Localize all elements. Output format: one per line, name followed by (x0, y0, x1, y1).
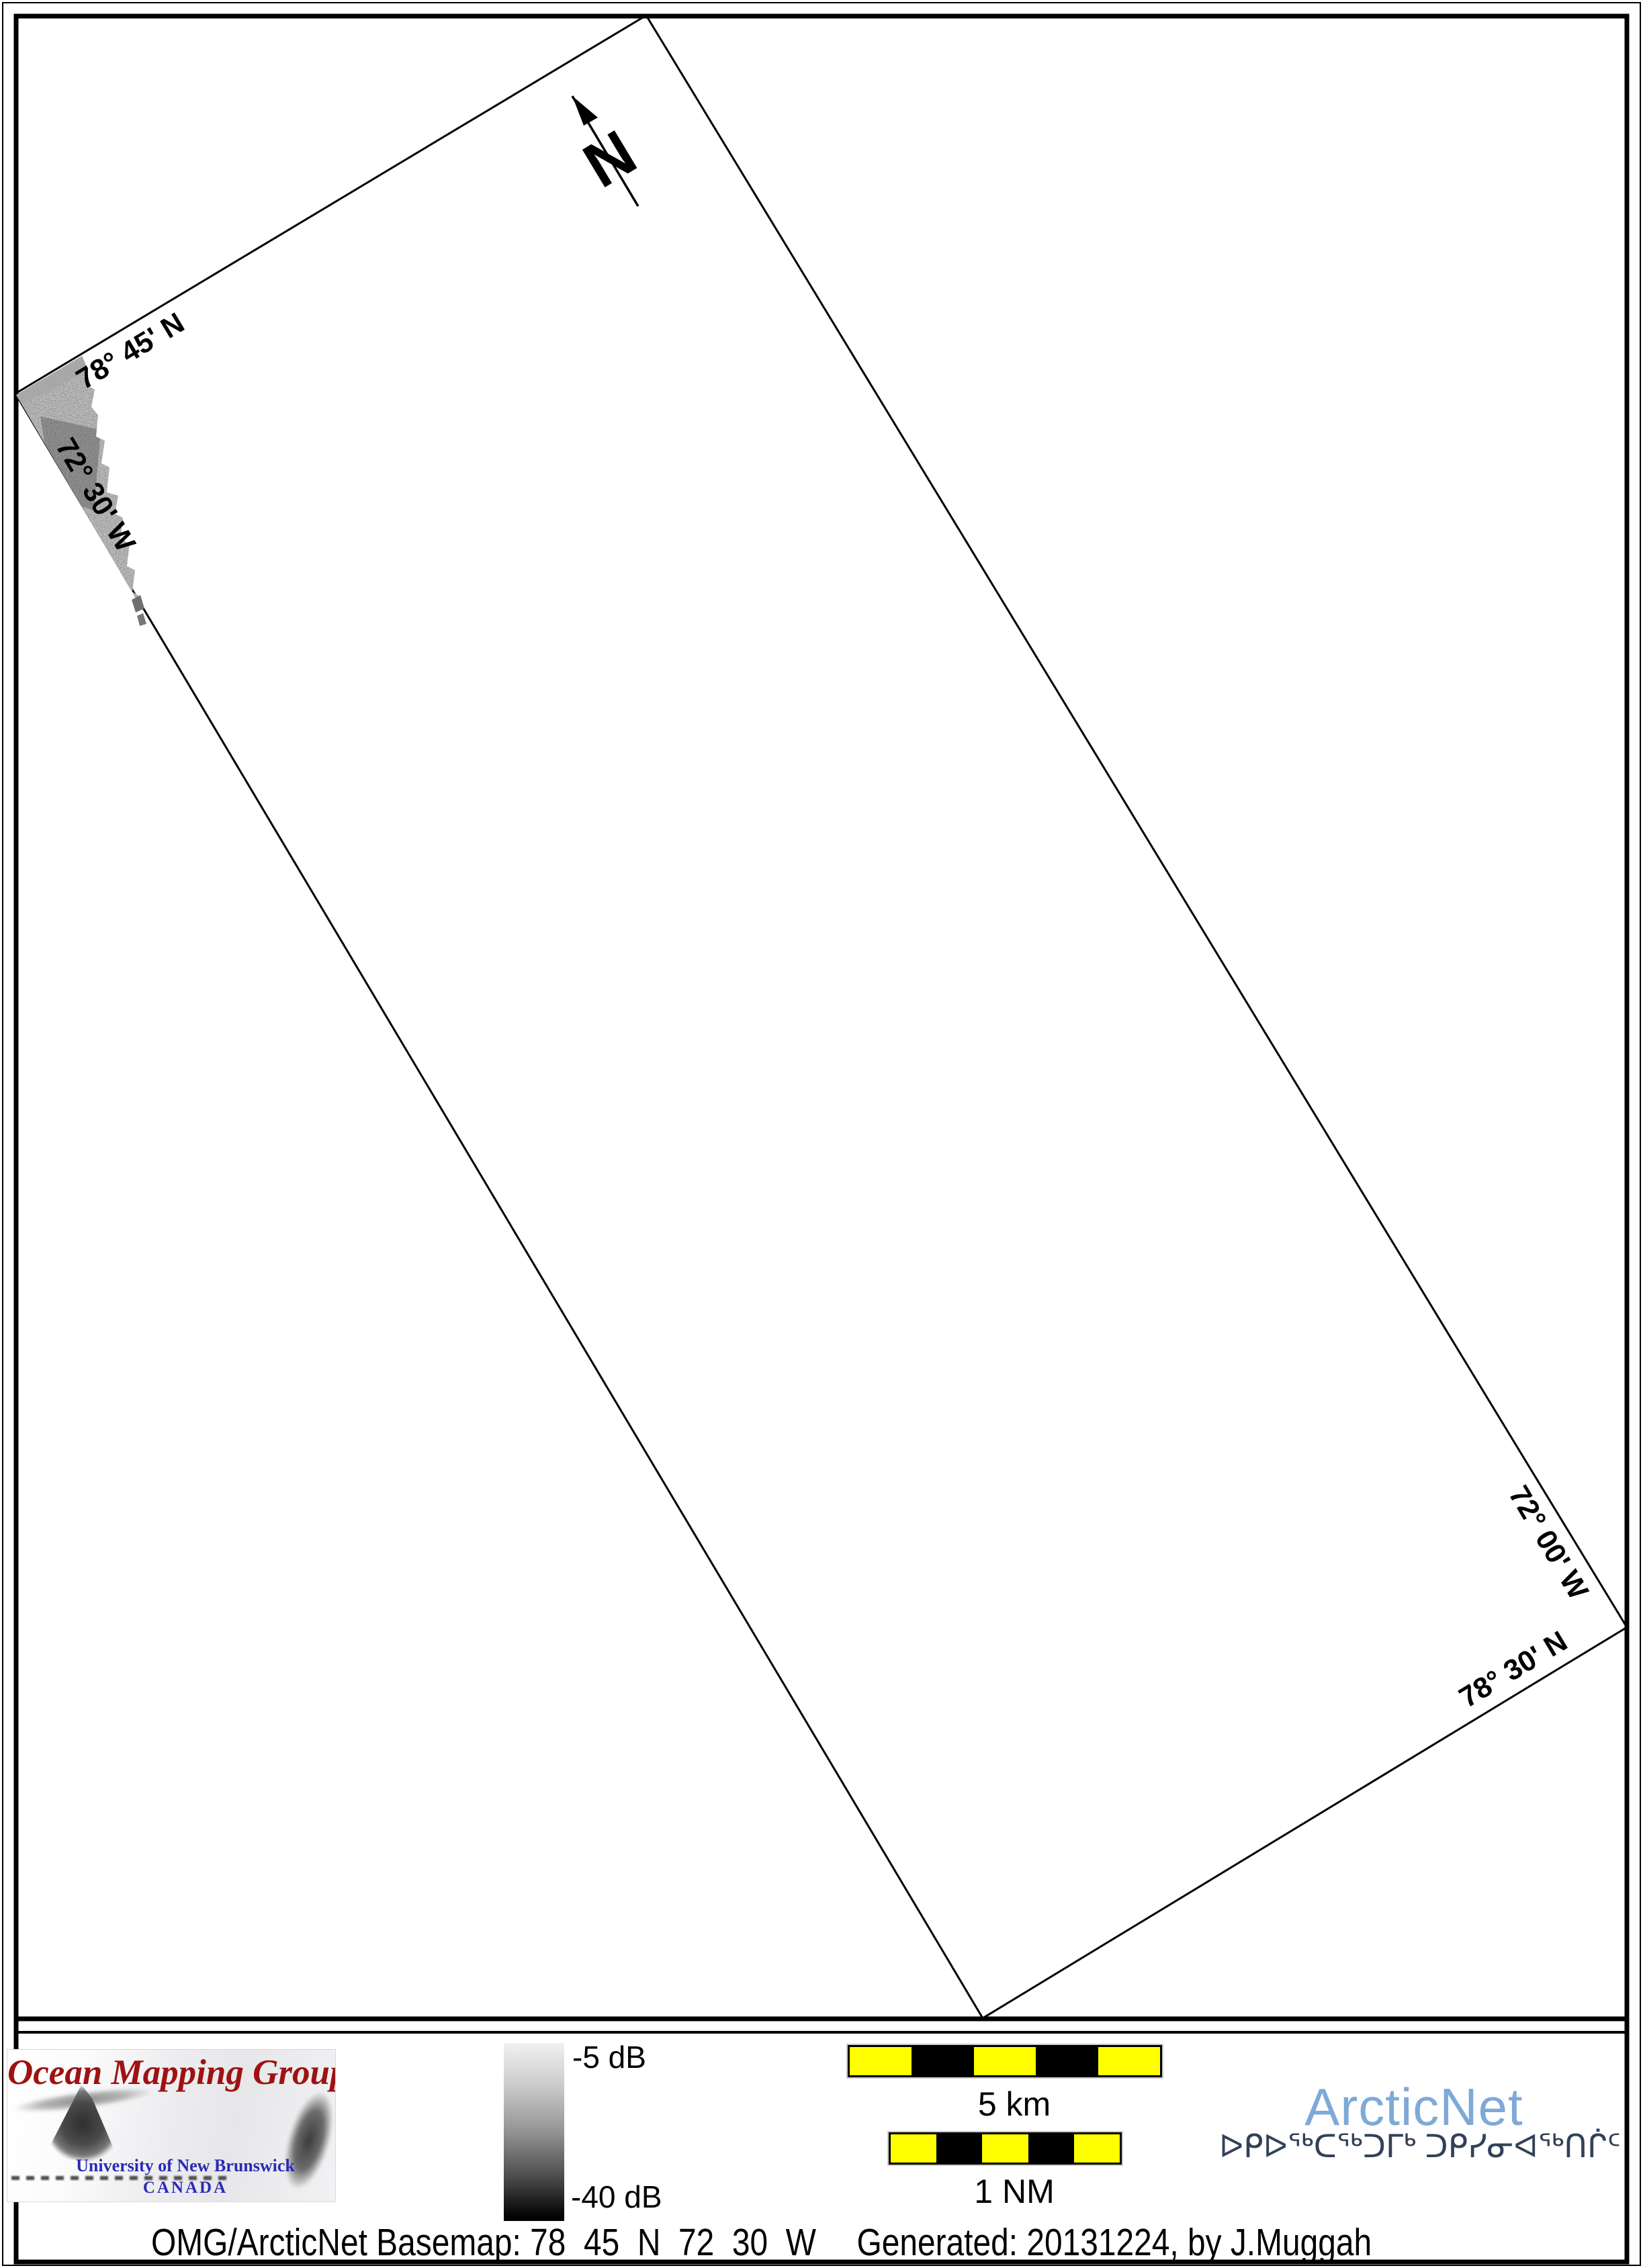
scalebar-segment (850, 2047, 912, 2075)
outer-frame (3, 3, 1640, 2265)
basemap-page: 78° 45' N 72° 30' W 72° 00' W 78° 30' N … (0, 0, 1643, 2268)
scalebar-segment (1098, 2047, 1160, 2075)
scalebar-km-label: 5 km (934, 2085, 1095, 2124)
scalebar-nm-label: 1 NM (934, 2172, 1095, 2211)
scalebar-segment (1028, 2134, 1074, 2163)
north-arrow-icon: N (572, 96, 648, 206)
omg-logo-title: Ocean Mapping Group (7, 2052, 335, 2093)
scalebar-nm (889, 2132, 1122, 2165)
grid-label-lat-top: 78° 45' N (71, 307, 189, 396)
colorbar-min-label: -40 dB (571, 2179, 662, 2215)
footer-basemap-title: OMG/ArcticNet Basemap: 78_45_N_72_30_W (151, 2220, 816, 2265)
scalebar-km (848, 2045, 1162, 2077)
scalebar-segment (1036, 2047, 1098, 2075)
scalebar-segment (936, 2134, 982, 2163)
map-canvas: 78° 45' N 72° 30' W 72° 00' W 78° 30' N … (0, 0, 1643, 2268)
arcticnet-inuktitut-name: ᐅᑭᐅᖅᑕᖅᑐᒥᒃ ᑐᑭᓯᓂᐊᖅᑎᒌᑦ (1219, 2128, 1609, 2165)
survey-boundary (15, 15, 1627, 2018)
scalebar-segment (912, 2047, 973, 2075)
inner-frame (16, 16, 1627, 2262)
colorbar-max-label: -5 dB (572, 2039, 646, 2075)
scalebar-segment (891, 2134, 936, 2163)
north-arrow-label: N (572, 117, 648, 201)
footer-caption: OMG/ArcticNet Basemap: 78_45_N_72_30_W G… (151, 2220, 1372, 2265)
footer-generated-info: Generated: 20131224, by J.Muggah (856, 2220, 1372, 2265)
scalebar-segment (982, 2134, 1028, 2163)
scalebar-segment (1074, 2134, 1120, 2163)
grid-label-lat-bottom: 78° 30' N (1454, 1625, 1572, 1715)
scalebar-segment (974, 2047, 1036, 2075)
backscatter-colorbar (504, 2043, 564, 2221)
omg-logo-university: University of New Brunswick (41, 2156, 330, 2176)
omg-logo: Ocean Mapping Group University of New Br… (7, 2049, 336, 2202)
omg-logo-country: CANADA (41, 2179, 330, 2197)
